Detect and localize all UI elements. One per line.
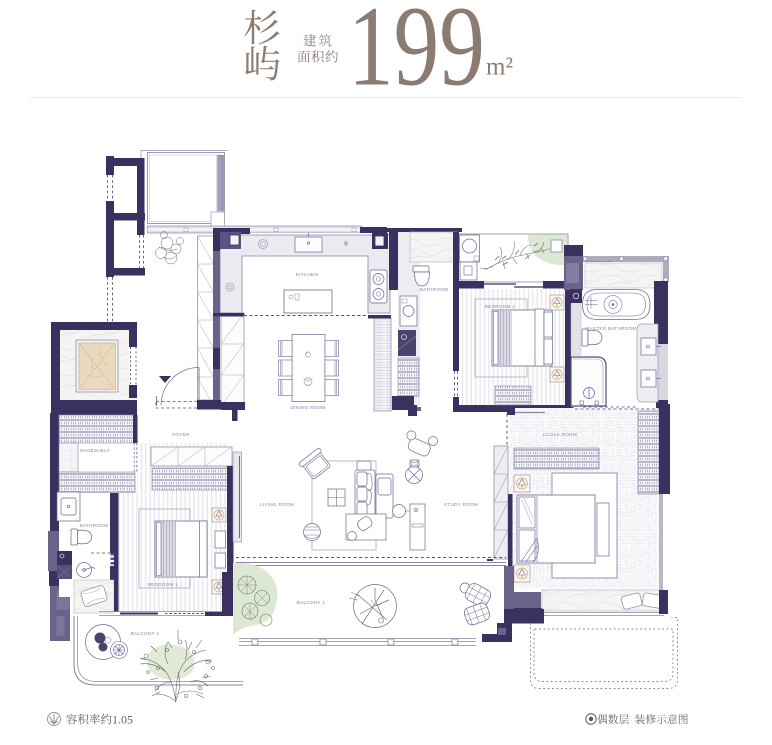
- svg-text:m²: m²: [486, 54, 513, 81]
- svg-text:1.05: 1.05: [112, 713, 133, 727]
- svg-text:FOYER: FOYER: [172, 432, 190, 437]
- svg-text:BALCONY 1: BALCONY 1: [297, 600, 326, 605]
- svg-text:BEDROOM 2: BEDROOM 2: [485, 304, 515, 309]
- svg-text:BATHROOM: BATHROOM: [80, 523, 109, 528]
- svg-text:KITCHEN: KITCHEN: [296, 272, 318, 277]
- svg-text:SHOESHELF: SHOESHELF: [80, 448, 111, 453]
- svg-text:STUDY ROOM: STUDY ROOM: [444, 502, 478, 507]
- svg-text:DINING ROOM: DINING ROOM: [291, 405, 326, 410]
- svg-text:BALCONY 2: BALCONY 2: [131, 631, 160, 636]
- svg-text:BEDROOM 1: BEDROOM 1: [148, 582, 178, 587]
- svg-text:LIVING ROOM: LIVING ROOM: [260, 502, 294, 507]
- svg-text:BATHROOM: BATHROOM: [420, 287, 449, 292]
- svg-text:199: 199: [348, 0, 485, 110]
- svg-text:CLOAK ROOM: CLOAK ROOM: [543, 432, 577, 437]
